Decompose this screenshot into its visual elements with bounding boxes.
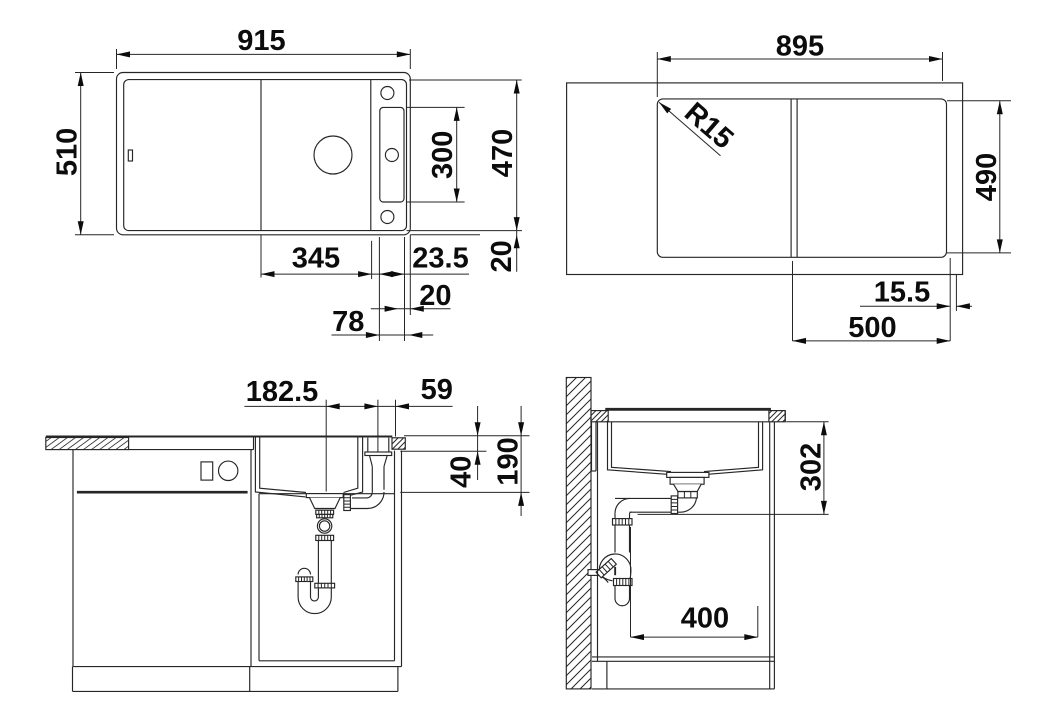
svg-text:15.5: 15.5 <box>874 277 930 309</box>
svg-text:510: 510 <box>52 128 84 176</box>
svg-text:300: 300 <box>427 131 459 179</box>
svg-text:400: 400 <box>681 603 729 635</box>
svg-text:500: 500 <box>848 312 896 344</box>
svg-text:78: 78 <box>332 306 364 338</box>
svg-text:345: 345 <box>292 243 340 275</box>
svg-text:302: 302 <box>796 443 828 491</box>
svg-text:R15: R15 <box>678 96 739 155</box>
svg-text:20: 20 <box>419 280 451 312</box>
svg-text:23.5: 23.5 <box>412 243 468 275</box>
svg-text:470: 470 <box>487 129 519 177</box>
svg-text:490: 490 <box>971 153 1003 201</box>
svg-text:20: 20 <box>486 240 518 272</box>
svg-text:59: 59 <box>421 374 453 406</box>
svg-text:895: 895 <box>776 31 824 63</box>
svg-text:190: 190 <box>492 437 524 485</box>
svg-text:182.5: 182.5 <box>246 376 319 408</box>
svg-text:915: 915 <box>237 25 285 57</box>
svg-text:40: 40 <box>446 456 478 488</box>
